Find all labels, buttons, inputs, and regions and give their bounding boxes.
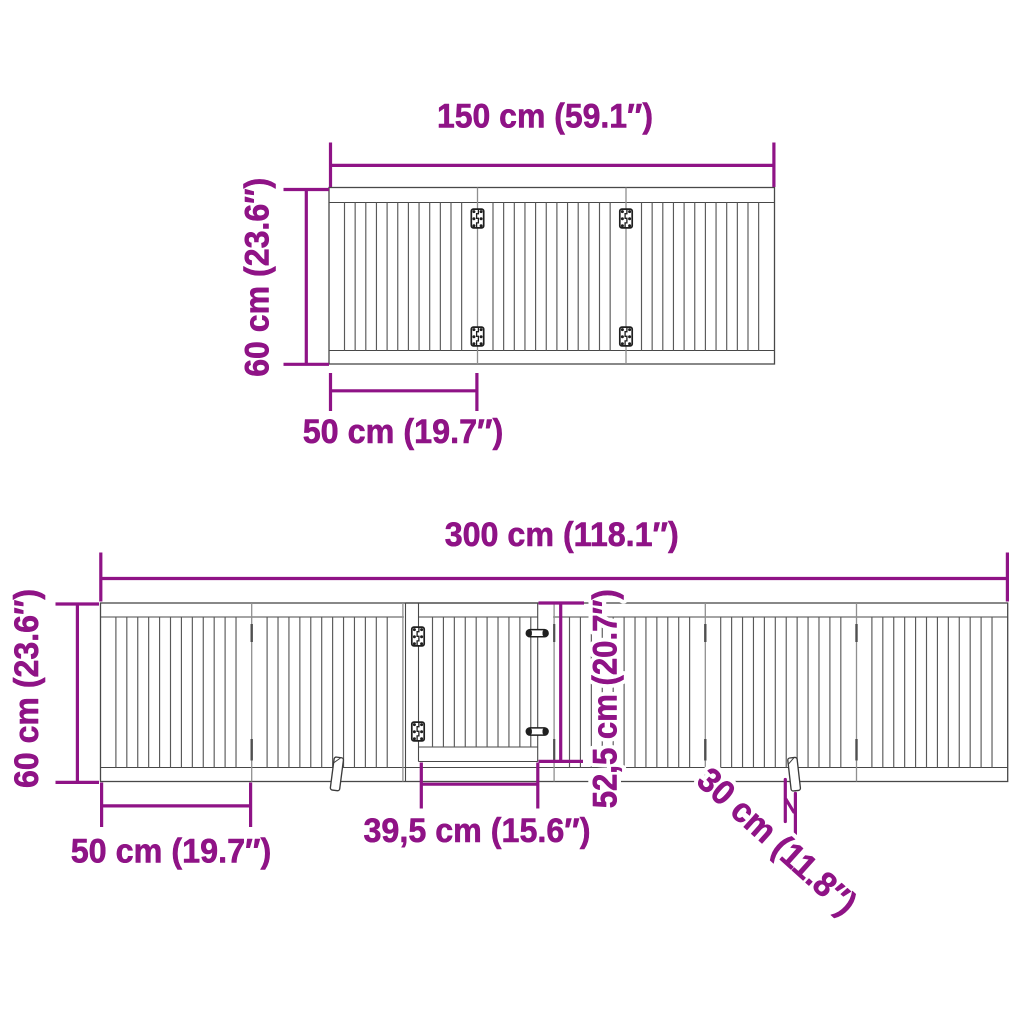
svg-text:50 cm (19.7″): 50 cm (19.7″) bbox=[71, 832, 272, 870]
svg-text:150 cm (59.1″): 150 cm (59.1″) bbox=[437, 98, 653, 136]
svg-text:52,5 cm (20.7″): 52,5 cm (20.7″) bbox=[586, 589, 624, 808]
svg-text:39,5 cm (15.6″): 39,5 cm (15.6″) bbox=[364, 812, 591, 850]
svg-text:300 cm (118.1″): 300 cm (118.1″) bbox=[445, 516, 679, 554]
svg-text:60 cm (23.6″): 60 cm (23.6″) bbox=[8, 589, 46, 788]
svg-text:60 cm (23.6″): 60 cm (23.6″) bbox=[239, 178, 277, 377]
svg-text:50 cm (19.7″): 50 cm (19.7″) bbox=[303, 413, 504, 451]
